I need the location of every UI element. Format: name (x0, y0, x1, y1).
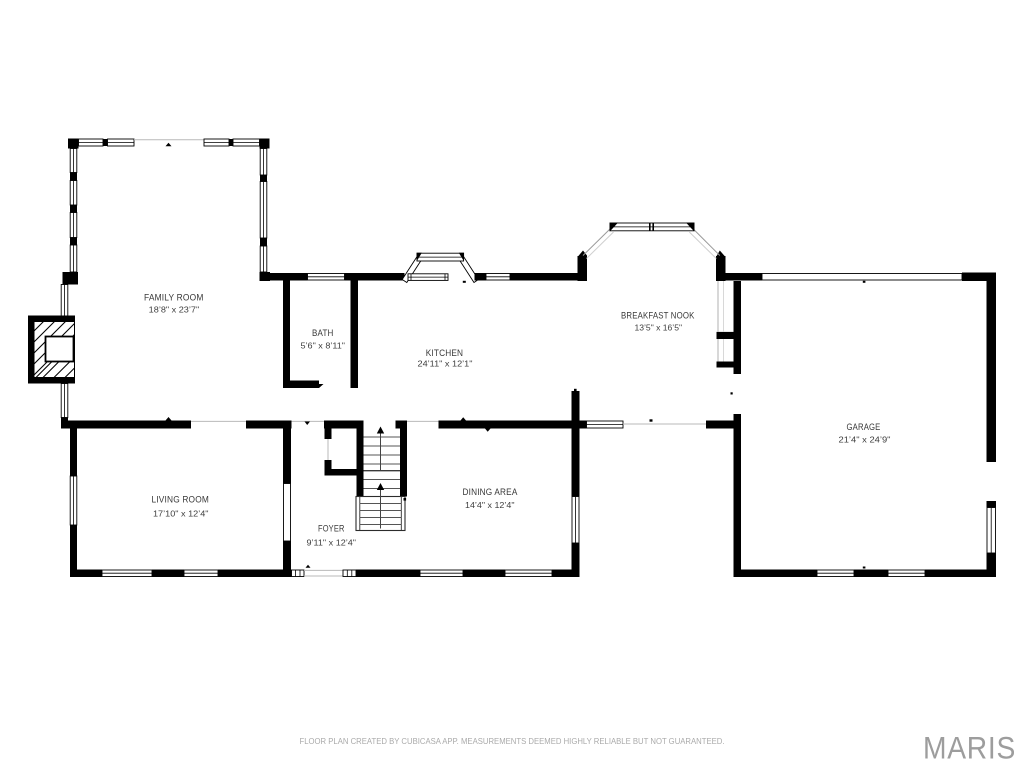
svg-text:KITCHEN: KITCHEN (426, 347, 464, 358)
svg-text:FOYER: FOYER (318, 522, 345, 533)
svg-text:LIVING ROOM: LIVING ROOM (152, 494, 210, 505)
svg-text:GARAGE: GARAGE (847, 421, 881, 432)
svg-text:5’6" x 8’11": 5’6" x 8’11" (301, 340, 346, 350)
svg-text:FAMILY ROOM: FAMILY ROOM (144, 291, 204, 302)
svg-text:14’4" x 12’4": 14’4" x 12’4" (465, 500, 515, 510)
svg-text:DINING AREA: DINING AREA (463, 486, 518, 497)
svg-text:BATH: BATH (312, 327, 334, 338)
svg-text:MARIS: MARIS (923, 730, 1016, 766)
svg-text:21’4" x 24’9": 21’4" x 24’9" (839, 434, 891, 444)
svg-text:9’11" x 12’4": 9’11" x 12’4" (307, 537, 357, 547)
svg-text:17’10" x 12’4": 17’10" x 12’4" (153, 508, 209, 518)
svg-text:FLOOR PLAN CREATED BY CUBICASA: FLOOR PLAN CREATED BY CUBICASA APP. MEAS… (300, 737, 725, 746)
svg-text:BREAKFAST NOOK: BREAKFAST NOOK (621, 310, 695, 321)
svg-text:18’8" x 23’7": 18’8" x 23’7" (149, 304, 200, 314)
svg-text:24’11" x 12’1": 24’11" x 12’1" (418, 358, 473, 368)
svg-text:13’5" x 16’5": 13’5" x 16’5" (635, 322, 683, 332)
